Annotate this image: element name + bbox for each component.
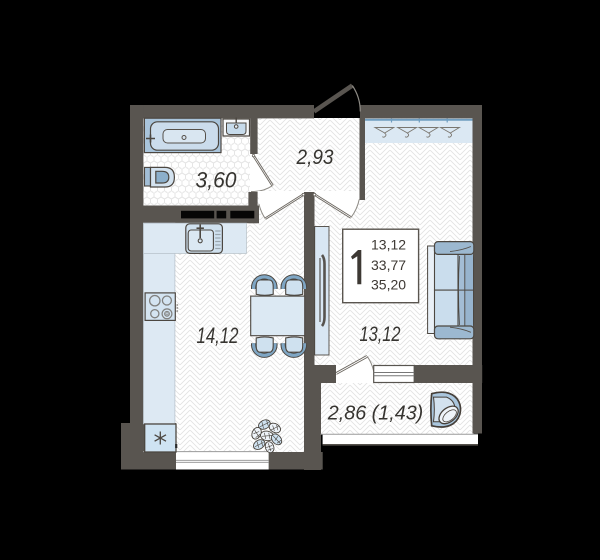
- svg-text:2,86 (1,43): 2,86 (1,43): [327, 403, 423, 425]
- svg-text:2,93: 2,93: [296, 146, 334, 169]
- svg-text:13,12: 13,12: [360, 323, 401, 346]
- svg-text:3,60: 3,60: [196, 168, 238, 193]
- svg-text:14,12: 14,12: [197, 323, 239, 348]
- svg-text:13,12: 13,12: [371, 237, 406, 253]
- svg-text:33,77: 33,77: [371, 257, 406, 273]
- svg-text:35,20: 35,20: [371, 276, 406, 292]
